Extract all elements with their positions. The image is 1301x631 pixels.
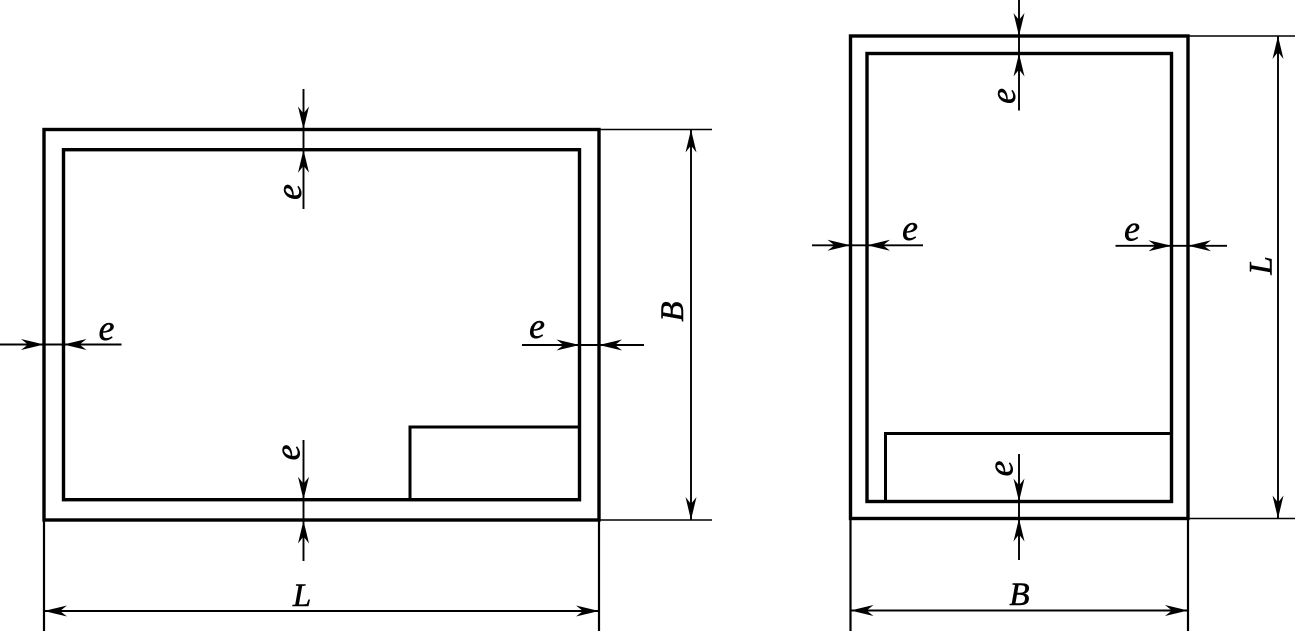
svg-text:B: B: [1009, 577, 1029, 613]
svg-text:L: L: [292, 578, 311, 614]
svg-text:e: e: [983, 88, 1023, 104]
svg-text:e: e: [902, 208, 918, 248]
svg-text:e: e: [981, 461, 1021, 477]
svg-text:e: e: [269, 184, 309, 200]
svg-text:e: e: [1124, 209, 1140, 249]
svg-text:L: L: [1244, 256, 1280, 275]
svg-text:B: B: [655, 301, 691, 321]
svg-text:e: e: [529, 306, 545, 346]
svg-text:e: e: [99, 308, 115, 348]
svg-text:e: e: [268, 445, 308, 461]
